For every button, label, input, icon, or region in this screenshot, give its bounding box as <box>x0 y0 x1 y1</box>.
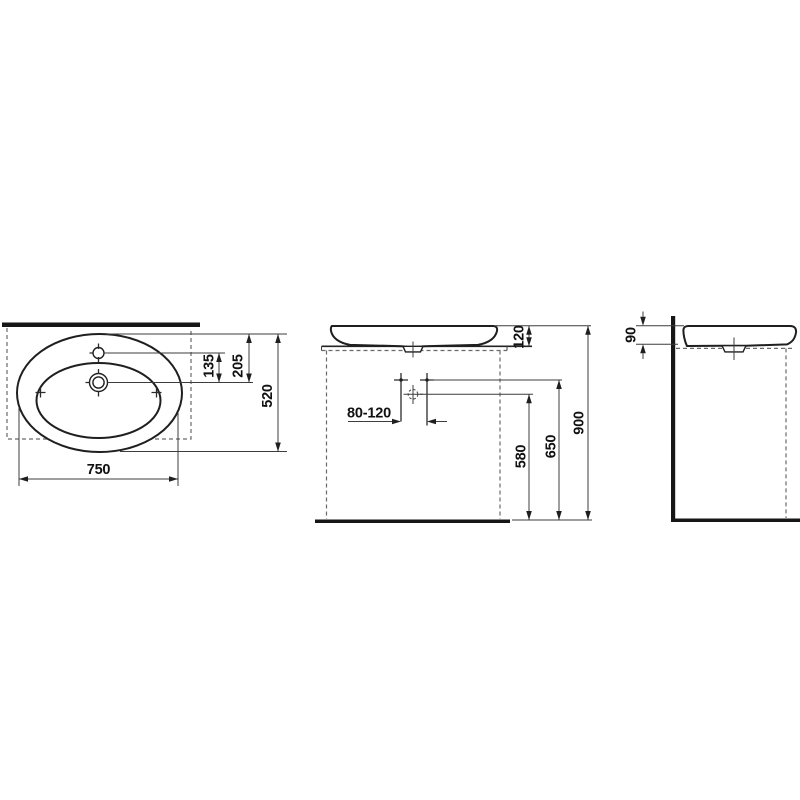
arrow-down-icon <box>526 511 532 520</box>
arrow-down-icon <box>585 511 591 520</box>
supply-point-right-dot <box>425 378 428 381</box>
arrow-down-icon <box>246 374 252 383</box>
dim-label-tap-to-drain: 135 <box>202 354 218 378</box>
arrow-down-icon <box>640 317 646 326</box>
front-view: 80-120 120 580 650 900 <box>315 325 592 523</box>
floor-line <box>315 520 510 524</box>
cabinet-dashed-outline <box>327 351 501 520</box>
arrow-down-icon <box>556 511 562 520</box>
arrow-up-icon <box>585 326 591 335</box>
technical-drawing-sheet: 135 205 520 750 80-120 <box>0 0 800 800</box>
arrow-up-icon <box>640 344 646 353</box>
arrow-up-icon <box>526 394 532 403</box>
supply-point-left-dot <box>399 378 402 381</box>
arrow-up-icon <box>275 334 281 343</box>
arrow-down-icon <box>275 443 281 452</box>
dim-label-basin-height: 120 <box>512 325 528 349</box>
dim-label-supply-height: 650 <box>544 435 560 459</box>
top-view: 135 205 520 750 <box>2 323 287 487</box>
floor-line <box>671 519 800 523</box>
wall-line <box>671 316 675 522</box>
dim-label-overall-depth: 520 <box>260 384 276 408</box>
dim-label-overall-height: 900 <box>572 411 588 435</box>
arrow-left-icon <box>427 419 436 425</box>
arrow-up-icon <box>556 380 562 389</box>
washbasin-dimension-drawing: 135 205 520 750 80-120 <box>0 0 800 800</box>
dim-label-rear-edge-to-drain: 205 <box>231 354 247 378</box>
basin-front-profile <box>331 326 497 347</box>
dim-label-tap-hole-spacing: 80-120 <box>347 406 391 422</box>
arrow-right-icon <box>169 476 178 482</box>
wall-line <box>2 323 200 328</box>
dim-label-drain-height: 580 <box>514 445 530 469</box>
drain-inner <box>93 377 104 388</box>
side-view: 90 <box>624 312 800 523</box>
basin-side-profile <box>683 326 796 346</box>
tap-hole <box>93 348 104 359</box>
arrow-up-icon <box>246 334 252 343</box>
dim-label-rim-depth: 90 <box>624 327 640 343</box>
arrow-right-icon <box>392 419 401 425</box>
arrow-left-icon <box>19 476 28 482</box>
dim-label-overall-width: 750 <box>87 462 111 478</box>
